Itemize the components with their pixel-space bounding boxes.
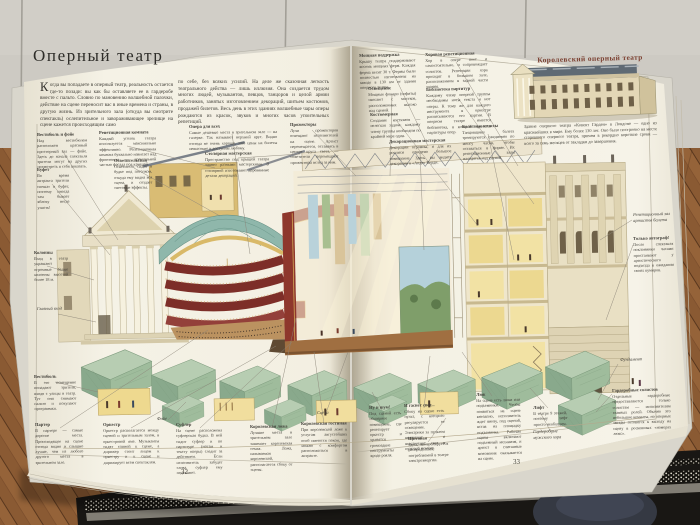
- label-royal-lounge-title: Королевская гостиная: [301, 420, 347, 426]
- label-foyer-title: Фойе: [157, 416, 179, 422]
- label-ballet-classes: Балетные классыТанцовщики балета трениру…: [462, 122, 515, 161]
- label-royal-box-title: Королевская ложа: [250, 423, 292, 429]
- label-autograph-text: После спектакля поклонники часами проста…: [633, 241, 674, 274]
- label-columns: КолонныВход в театр украшают огромные бе…: [34, 250, 68, 283]
- royal-opera-house-exterior: [511, 60, 658, 125]
- label-carpentry-workshop: Столярная мастерскаяПространство под кры…: [205, 150, 269, 178]
- label-choir-rehearsal: Хоровая репетиционнаяХор в опере поет и …: [425, 50, 488, 89]
- label-ballet-classes-text: Танцовщики балета тренируются ежедневно …: [462, 129, 515, 162]
- stage-and-fly-tower: [281, 168, 463, 356]
- label-soloists-dressing-text: Отдельные гардеробные предоставляются то…: [612, 393, 671, 437]
- label-orchestra: ОркестрОркестр располагается между сцено…: [103, 421, 160, 465]
- label-lift-text: В театре 9 этажей, поэтому лифт просто н…: [533, 410, 567, 427]
- label-mens-choir-dressing: Гардеробные мужского хора: [533, 428, 569, 441]
- label-royal-lounge: Королевская гостинаяПри королевской ложе…: [301, 420, 347, 458]
- intro-column-1-text: огда вы попадаете в оперный театр, реаль…: [40, 82, 173, 128]
- label-vestibule-text: В это помещение попадают зрители, входя …: [34, 380, 76, 412]
- dropcap: К: [40, 82, 50, 92]
- label-stage-lighting: ОсвещениеМощные фонари (софиты) свисают …: [368, 85, 417, 114]
- label-vestibule-title: Вестибюль: [34, 373, 76, 379]
- intro-column-1: Когда вы попадаете в оперный театр, реал…: [40, 82, 173, 129]
- label-switchboard: ЩитоваяЗдесь контролируется распределени…: [408, 435, 449, 463]
- label-lighting-box-text: Осветитель сидит в будке под потолком, о…: [114, 164, 152, 191]
- label-buffet-title: Буфет: [37, 167, 69, 173]
- balcony-tiers: [165, 254, 284, 326]
- label-prompter-title: Суфлер: [176, 421, 222, 427]
- label-buffet-text: Во время антракта зрители спешат в буфет…: [37, 173, 69, 210]
- intro-column-2: по себе, без всяких усилий. На деле же с…: [178, 79, 329, 126]
- label-stage: Сцена: [317, 410, 341, 416]
- label-parterre-title: Партер: [35, 421, 83, 427]
- backstage-floors: [463, 162, 550, 392]
- label-scenery-workshop-text: Декорации огромны, и для их росписи отве…: [389, 143, 452, 166]
- photo-of-open-book: Оперный театр Когда вы попадаете в оперн…: [0, 0, 700, 525]
- label-spotlights-title: Прожекторы: [290, 121, 338, 127]
- label-lighting-box-title: Осветительская: [114, 158, 152, 164]
- label-costume-room: КостюмернаяСоздание костюмов — нелегкая …: [370, 111, 421, 140]
- sidebar-caption: Здание оперного театра «Ковент Гарден» в…: [524, 120, 658, 146]
- label-parterre: ПартерВ партере — самые дорогие места. П…: [35, 421, 84, 464]
- label-foundation-title: Фундамент: [620, 356, 658, 363]
- label-vestibule: ВестибюльВ это помещение попадают зрител…: [34, 373, 76, 411]
- label-main-entrance: Главный вход: [37, 306, 63, 312]
- label-opera-for-all-text: Самые дешевые места в зрительном зале — …: [189, 129, 277, 151]
- label-parterre-text: В партере — самые дорогие места. Происхо…: [35, 428, 83, 465]
- orchestra-pit: [269, 339, 287, 353]
- label-foyer: Фойе: [157, 416, 179, 422]
- label-columns-text: Вход в театр украшают огромные белые кол…: [34, 256, 68, 283]
- label-scenery-workshop: Декорационная мастерскаяДекорации огромн…: [389, 137, 452, 166]
- label-royal-box: Королевская ложаЛучшие места в зрительно…: [250, 423, 293, 472]
- label-prompter-text: На сцене расположена суфлерская будка. В…: [176, 428, 223, 476]
- label-lift: ЛифтВ театре 9 этажей, поэтому лифт прос…: [533, 404, 568, 427]
- label-vestibule-foyer: Вестибюль и фойеНад вестибюлем расположе…: [37, 131, 87, 169]
- page-title: Оперный театр: [33, 46, 164, 66]
- label-switchboard-text: Здесь контролируется распределение потре…: [408, 441, 449, 463]
- label-columns-title: Колонны: [34, 250, 68, 256]
- label-buffet: БуфетВо время антракта зрители спешат в …: [37, 167, 70, 210]
- label-royal-lounge-text: При королевской ложе к услугам августейш…: [301, 427, 347, 459]
- main-entrance-door: [98, 315, 110, 334]
- label-autograph: Только автограф!После спектакля поклонни…: [633, 235, 674, 274]
- label-main-entrance-title: Главный вход: [37, 306, 63, 312]
- side-gallery: [451, 174, 462, 338]
- label-opera-for-all: Опера для всехСамые дешевые места в зрит…: [189, 123, 277, 151]
- label-spotlights-text: Лучи прожекторов освещают исполнителей н…: [290, 128, 338, 165]
- label-noise-text: Под сценой есть обширное помещение, где …: [369, 410, 402, 458]
- label-soloists-dressing: Гардеробные солистовОтдельные гардеробны…: [612, 386, 671, 436]
- label-foundation: Фундамент: [620, 356, 658, 363]
- label-trapdoor: ЛюкНа сцене есть люки или подъемники. Чт…: [476, 391, 522, 461]
- label-orchestra-text: Оркестр располагается между сценой и зри…: [103, 428, 159, 465]
- label-costume-room-text: Создание костюмов — нелегкая задача: каж…: [370, 117, 421, 139]
- scenery-backdrop: [399, 246, 451, 335]
- label-royal-box-text: Лучшие места в зрительном зале занимает …: [250, 430, 293, 472]
- label-carpentry-workshop-text: Пространство под крышей театра занято ра…: [205, 156, 269, 178]
- label-vestibule-foyer-title: Вестибюль и фойе: [37, 131, 87, 137]
- label-stage-title: Сцена: [317, 410, 341, 416]
- label-mens-choir-dressing-title: Гардеробные мужского хора: [533, 428, 569, 440]
- label-prompter: СуфлерНа сцене расположена суфлерская бу…: [176, 421, 223, 475]
- label-spotlights: ПрожекторыЛучи прожекторов освещают испо…: [290, 121, 339, 164]
- label-vestibule-foyer-text: Над вестибюлем расположен красивый прост…: [37, 138, 87, 170]
- label-noise: Ну и шум!Под сценой есть обширное помеще…: [369, 404, 403, 458]
- label-ballet-rehearsal-hall: Репетиционный зал артистов балета: [633, 211, 673, 224]
- label-lighting-box: ОсветительскаяОсветитель сидит в будке п…: [114, 158, 152, 191]
- label-trapdoor-text: На сцене есть люки или подъемники. Чтобы…: [476, 397, 522, 461]
- label-ballet-rehearsal-hall-title: Репетиционный зал артистов балета: [633, 211, 673, 223]
